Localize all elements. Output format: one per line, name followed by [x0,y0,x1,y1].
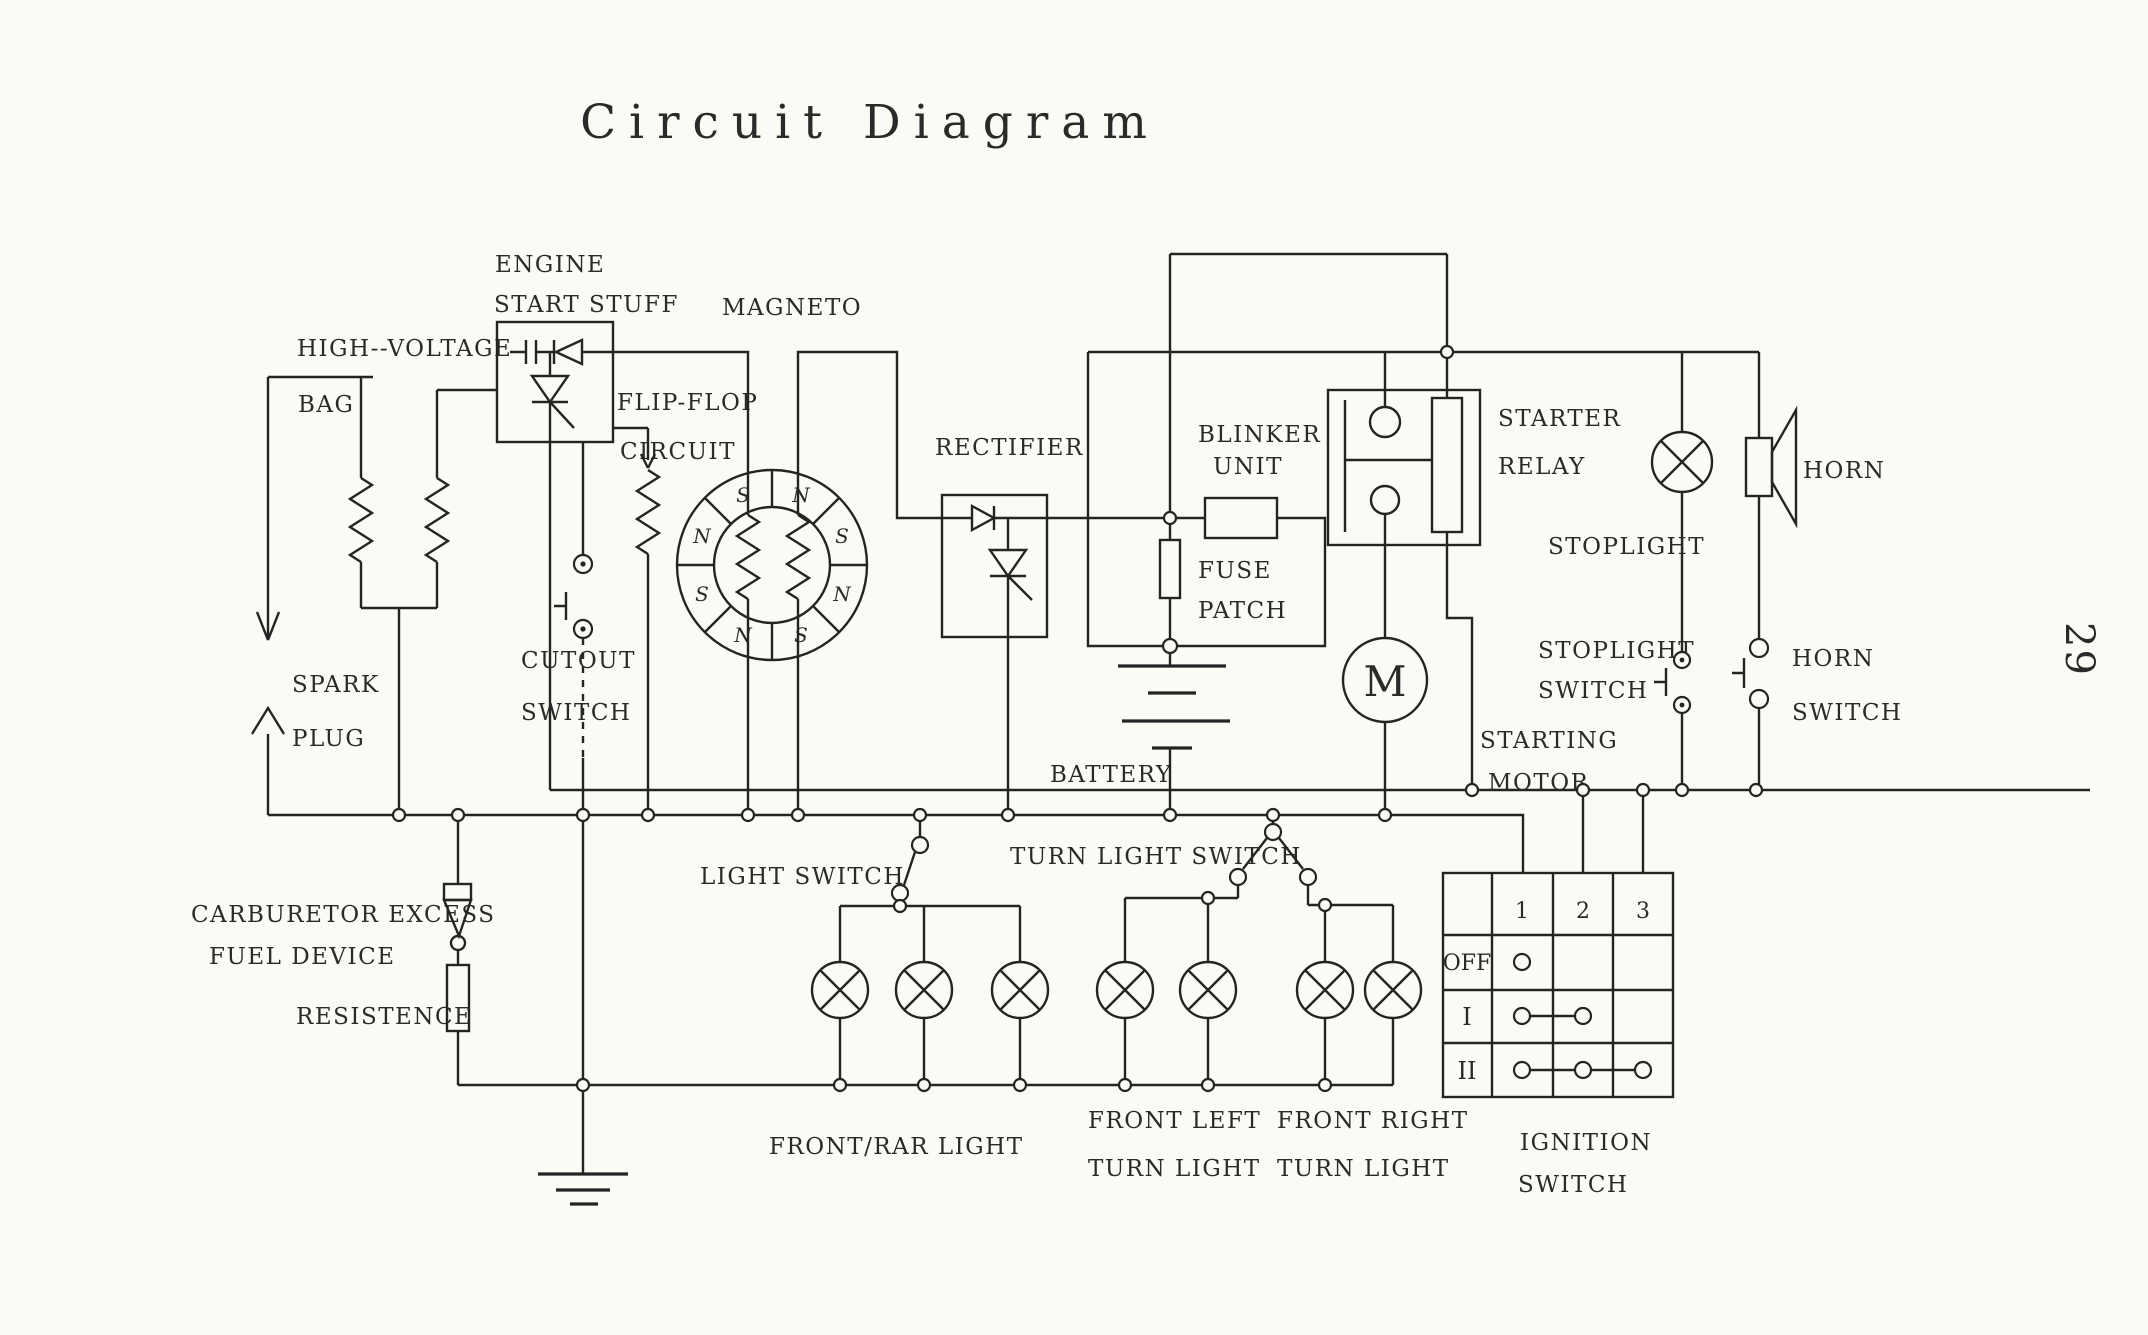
stoplight: STOPLIGHT [1548,352,1712,651]
contact-icon [1635,1062,1651,1078]
front-left-turn-label-2: TURN LIGHT [1088,1156,1261,1182]
relay-contact-2-icon [1371,486,1399,514]
cutout-switch-label-1: CUTOUT [521,648,636,674]
pole-letter: S [835,524,849,548]
carburetor-excess-fuel-device: CARBURETOR EXCESS FUEL DEVICE [191,815,496,970]
stoplight-switch-label-2: SWITCH [1538,678,1648,704]
fuse-patch-label-2: PATCH [1198,598,1287,624]
ignition-row-2: II [1458,1057,1477,1085]
flip-flop-label-1: FLIP-FLOP [617,390,758,416]
pole-letter: N [692,524,712,548]
cutout-switch-label-2: SWITCH [521,700,631,726]
horn-switch-label-2: SWITCH [1792,700,1902,726]
capacitor-diode-icon [510,340,613,364]
high-voltage-bag-label-1: HIGH--VOLTAGE [297,336,512,362]
rectifier-label: RECTIFIER [935,435,1084,461]
stoplight-label: STOPLIGHT [1548,534,1705,560]
blinker-unit-label-2: UNIT [1213,454,1283,480]
ignition-col-1: 1 [1515,899,1529,924]
magneto-coil-1-icon [737,515,759,815]
starting-motor-label-2: MOTOR [1488,770,1589,796]
horn: HORN [1746,352,1885,639]
horn-switch: HORN SWITCH [1732,639,1902,790]
engine-start-stuff-label-2: START STUFF [494,292,679,318]
light-switch-label: LIGHT SWITCH [700,864,905,890]
spark-plug-label-2: PLUG [292,726,365,752]
scanned-circuit-diagram-page: Circuit Diagram 29 HIGH--VOLTAGE BAG SPA… [0,0,2148,1335]
ignition-col-2: 2 [1576,899,1590,924]
fuse-patch-label-1: FUSE [1198,558,1272,584]
thyristor-icon [532,376,568,402]
light-switch: LIGHT SWITCH [700,821,1020,962]
ignition-row-off: OFF [1443,951,1492,976]
contact-icon [1575,1008,1591,1024]
front-left-turn-light: FRONT LEFT TURN LIGHT [1088,962,1261,1182]
pushbutton-actuator-icon [1732,658,1744,688]
front-right-turn-light: FRONT RIGHT TURN LIGHT [1277,962,1469,1182]
bag-resistor-2-icon [426,390,497,608]
pole-letter: S [736,483,750,507]
engine-start-stuff-label-1: ENGINE [495,252,605,278]
ignition-row-1: I [1462,1003,1471,1031]
ground [538,1085,628,1204]
horn-label: HORN [1803,458,1885,484]
front-right-turn-label-2: TURN LIGHT [1277,1156,1450,1182]
magneto-inner-ring-icon [714,507,830,623]
flip-flop-resistor-icon [637,470,659,815]
starting-motor-label-1: STARTING [1480,728,1618,754]
thyristor-icon [990,550,1026,576]
page-number: 29 [2056,622,2102,677]
magneto-coil-2-icon [787,515,809,815]
front-rar-light: FRONT/RAR LIGHT [769,962,1048,1160]
rectifier: RECTIFIER [935,435,1205,815]
starter-relay-label-2: RELAY [1498,454,1586,480]
starter-relay-box [1328,390,1480,545]
front-left-turn-label-1: FRONT LEFT [1088,1108,1261,1134]
front-rar-light-label: FRONT/RAR LIGHT [769,1134,1024,1160]
top-loop-wires [1088,254,1759,646]
magneto: MAGNETO N S N S N S N S [677,295,942,815]
horn-speaker-body-icon [1746,438,1772,496]
stoplight-switch-label-1: STOPLIGHT [1538,638,1695,664]
carburetor-label-2: FUEL DEVICE [209,944,396,970]
diode-icon [556,340,582,364]
pole-letter: N [733,623,753,647]
ignition-switch-label-2: SWITCH [1518,1172,1628,1198]
blinker-unit-label-1: BLINKER [1198,422,1321,448]
blinker-unit-box [1205,498,1277,538]
relay-contact-1-icon [1370,407,1400,437]
contact-icon [1514,1008,1530,1024]
pole-letter: S [695,582,709,606]
pole-letter: N [832,582,852,606]
spark-plug-label-1: SPARK [292,672,380,698]
fuse-icon [1160,540,1180,598]
battery-label: BATTERY [1050,762,1172,788]
turn-light-switch: TURN LIGHT SWITCH [1010,821,1393,962]
page-title: Circuit Diagram [580,95,1160,150]
high-voltage-bag-label-2: BAG [298,392,354,418]
ground-icon [538,1174,628,1204]
spark-plug: SPARK PLUG [252,672,380,815]
pole-letter: S [794,623,808,647]
starter-relay-label-1: STARTER [1498,406,1621,432]
resistence: RESISTENCE [296,965,472,1085]
pushbutton-actuator-icon [554,592,566,620]
ignition-switch-label-1: IGNITION [1520,1130,1652,1156]
fuse-node-junction [1163,639,1177,653]
pushbutton-actuator-icon [1654,668,1666,696]
fuel-device-cap-icon [444,884,471,900]
horn-switch-label-1: HORN [1792,646,1874,672]
contact-icon [1575,1062,1591,1078]
contact-icon [1514,1062,1530,1078]
stoplight-switch: STOPLIGHT SWITCH [1538,638,1695,790]
relay-coil-icon [1432,398,1462,532]
front-right-turn-label-1: FRONT RIGHT [1277,1108,1469,1134]
spark-plug-electrode-icon [252,708,284,734]
horn-speaker-cone-icon [1772,410,1796,524]
magneto-label: MAGNETO [722,295,862,321]
motor-m-symbol: M [1363,657,1406,706]
ignition-col-3: 3 [1636,899,1650,924]
spark-gap-arrow-icon [257,377,279,640]
ignition-switch: 1 2 3 OFF I II IGNITION SWITCH [1443,790,1673,1198]
magneto-pole-dividers [677,470,867,660]
pole-letter: N [791,483,811,507]
circuit-diagram-canvas: Circuit Diagram 29 HIGH--VOLTAGE BAG SPA… [0,0,2148,1335]
flip-flop-label-2: CIRCUIT [620,439,736,465]
contact-icon [1514,954,1530,970]
diode-icon [972,506,994,530]
main-bus-wires [268,790,2090,1085]
switch-blade-icon [904,852,915,885]
